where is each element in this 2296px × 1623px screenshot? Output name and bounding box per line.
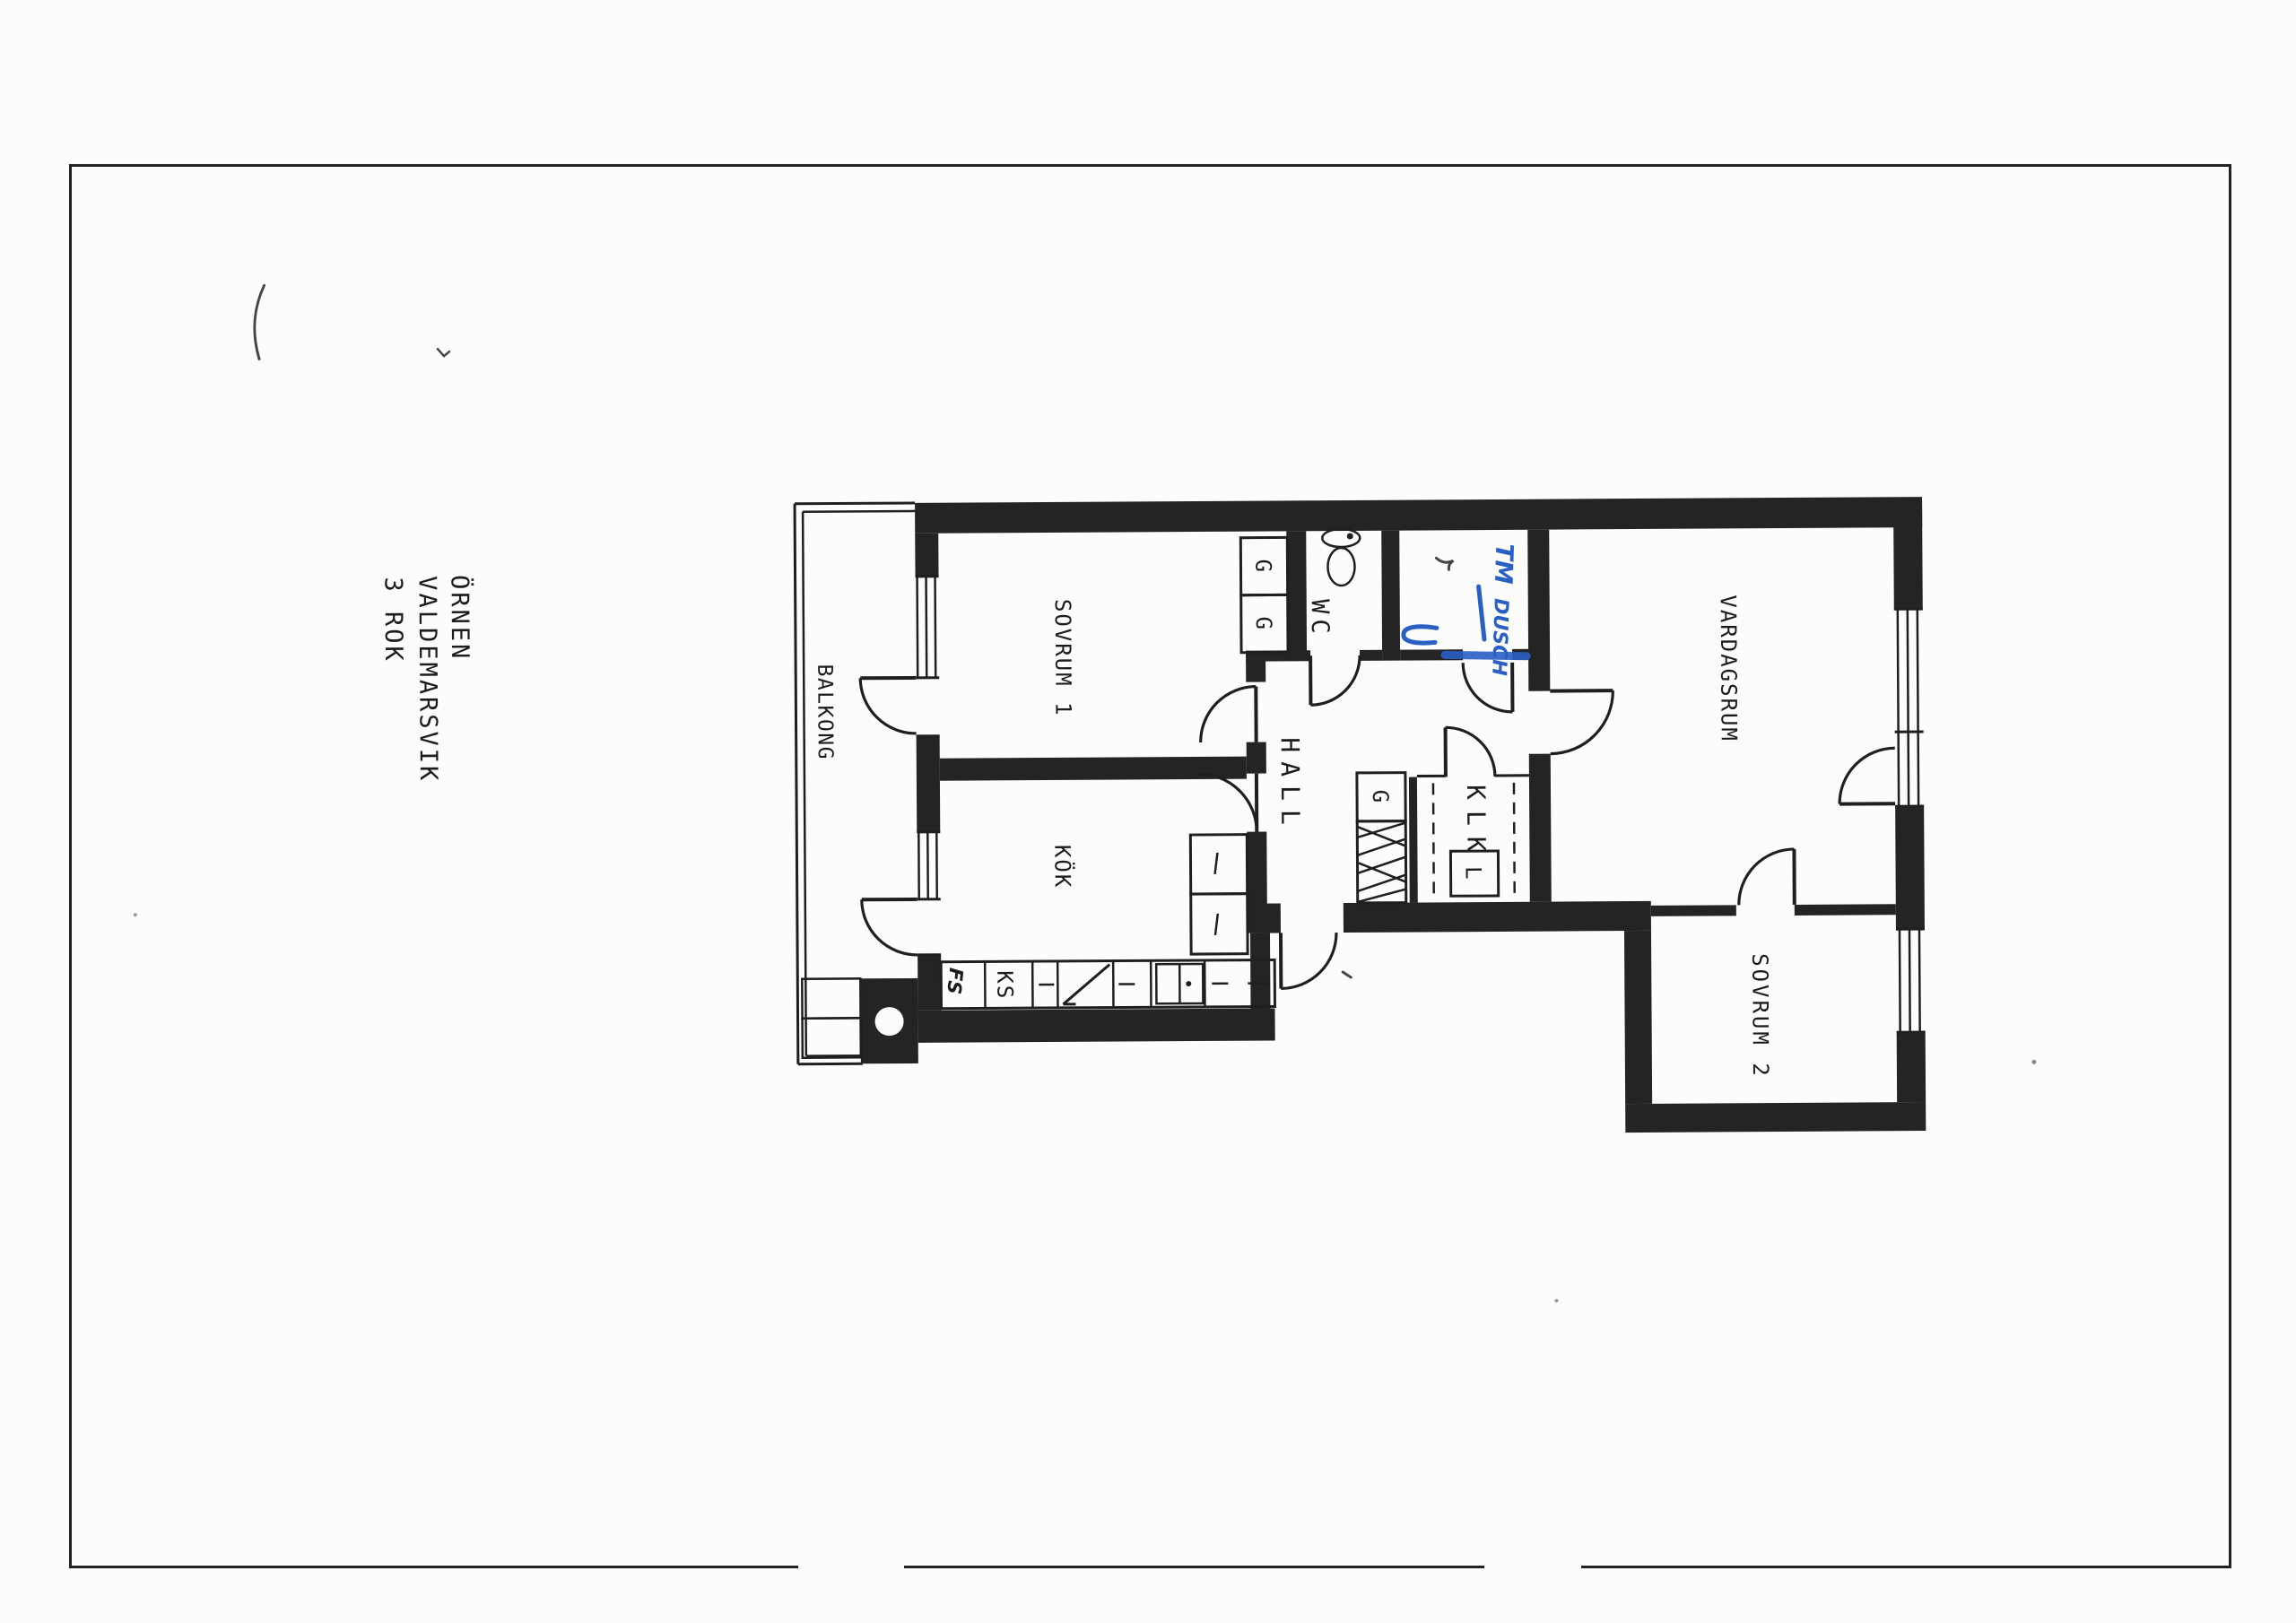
door-kitchen [1198, 774, 1257, 832]
room-label-kitchen: KÖK [1049, 845, 1075, 890]
clothes-rail [1433, 783, 1434, 898]
title-layout: 3 ROK [379, 577, 408, 663]
speck-artifact [2031, 1060, 2036, 1064]
handwritten-tm: TM [1489, 543, 1518, 585]
handwritten-slash [1479, 586, 1484, 639]
sink-icon [1156, 964, 1203, 1003]
kitchen-handwritten-note: FS [943, 967, 967, 995]
fridge-label: KS [992, 970, 1017, 1000]
entrance-door [1281, 933, 1336, 988]
linen-cabinet-label: L [1461, 866, 1486, 880]
wardrobe-boxes-bedroom1 [1240, 537, 1288, 652]
door-bedroom2 [1738, 849, 1794, 905]
door-wc [1310, 655, 1360, 705]
window-livingroom [1894, 609, 1924, 806]
balcony-storage-box [803, 1018, 861, 1057]
squiggle-artifact [1436, 558, 1453, 569]
room-label-hall: HALL [1275, 737, 1306, 834]
wardrobe-label-1: G [1250, 559, 1275, 572]
room-label-bedroom2: SOVRUM 2 [1747, 953, 1773, 1079]
floorplan-drawing: BALKONG SOVRUM 1 KÖK HALL WC KLK VARDAGS… [0, 0, 2296, 1623]
balcony-column [874, 1007, 903, 1036]
room-label-wc: WC [1306, 599, 1334, 639]
room-label-klk: KLK [1461, 785, 1492, 863]
balcony-door-bedroom1 [860, 678, 939, 737]
title-location: VALDEMARSVIK [413, 576, 442, 783]
balcony-storage-box [802, 978, 860, 1018]
clothes-rail [1514, 783, 1515, 898]
kitchen-counter [941, 959, 1274, 1008]
french-door-livingroom [1839, 748, 1895, 803]
speck-artifact [134, 913, 137, 916]
tick-artifact [1343, 972, 1351, 977]
shaft-hatch [1357, 821, 1406, 903]
toilet-icon [1322, 529, 1360, 586]
title-block: ÖRNEN VALDEMARSVIK 3 ROK [379, 575, 475, 784]
window-bedroom2 [1896, 929, 1926, 1032]
tall-cabinets-kitchen [1190, 835, 1248, 954]
stove-icon [1063, 965, 1109, 1004]
speck-artifact [1554, 1299, 1558, 1303]
door-livingroom [1550, 690, 1613, 753]
door-klk [1446, 727, 1495, 777]
scanned-floorplan-page: BALKONG SOVRUM 1 KÖK HALL WC KLK VARDAGS… [0, 0, 2296, 1623]
blue-bracket-mark [1404, 627, 1437, 644]
window-bedroom1 [916, 577, 940, 678]
handwritten-dusch: DUSCH [1487, 598, 1511, 676]
room-label-livingroom: VARDAGSRUM [1716, 595, 1742, 742]
blue-wall-highlight [1445, 655, 1526, 657]
room-label-balcony: BALKONG [813, 664, 837, 760]
room-label-bedroom1: SOVRUM 1 [1050, 599, 1076, 717]
scan-artifacts [130, 274, 2038, 1311]
pen-stroke-artifact [255, 285, 265, 359]
small-mark-artifact [438, 349, 449, 356]
wardrobe-label-hall: G [1368, 790, 1393, 803]
window-kitchen [917, 832, 940, 899]
door-bedroom1 [1200, 687, 1256, 742]
wardrobe-label-2: G [1251, 616, 1276, 629]
balcony-door-kitchen [862, 899, 941, 956]
title-project: ÖRNEN [446, 575, 475, 661]
